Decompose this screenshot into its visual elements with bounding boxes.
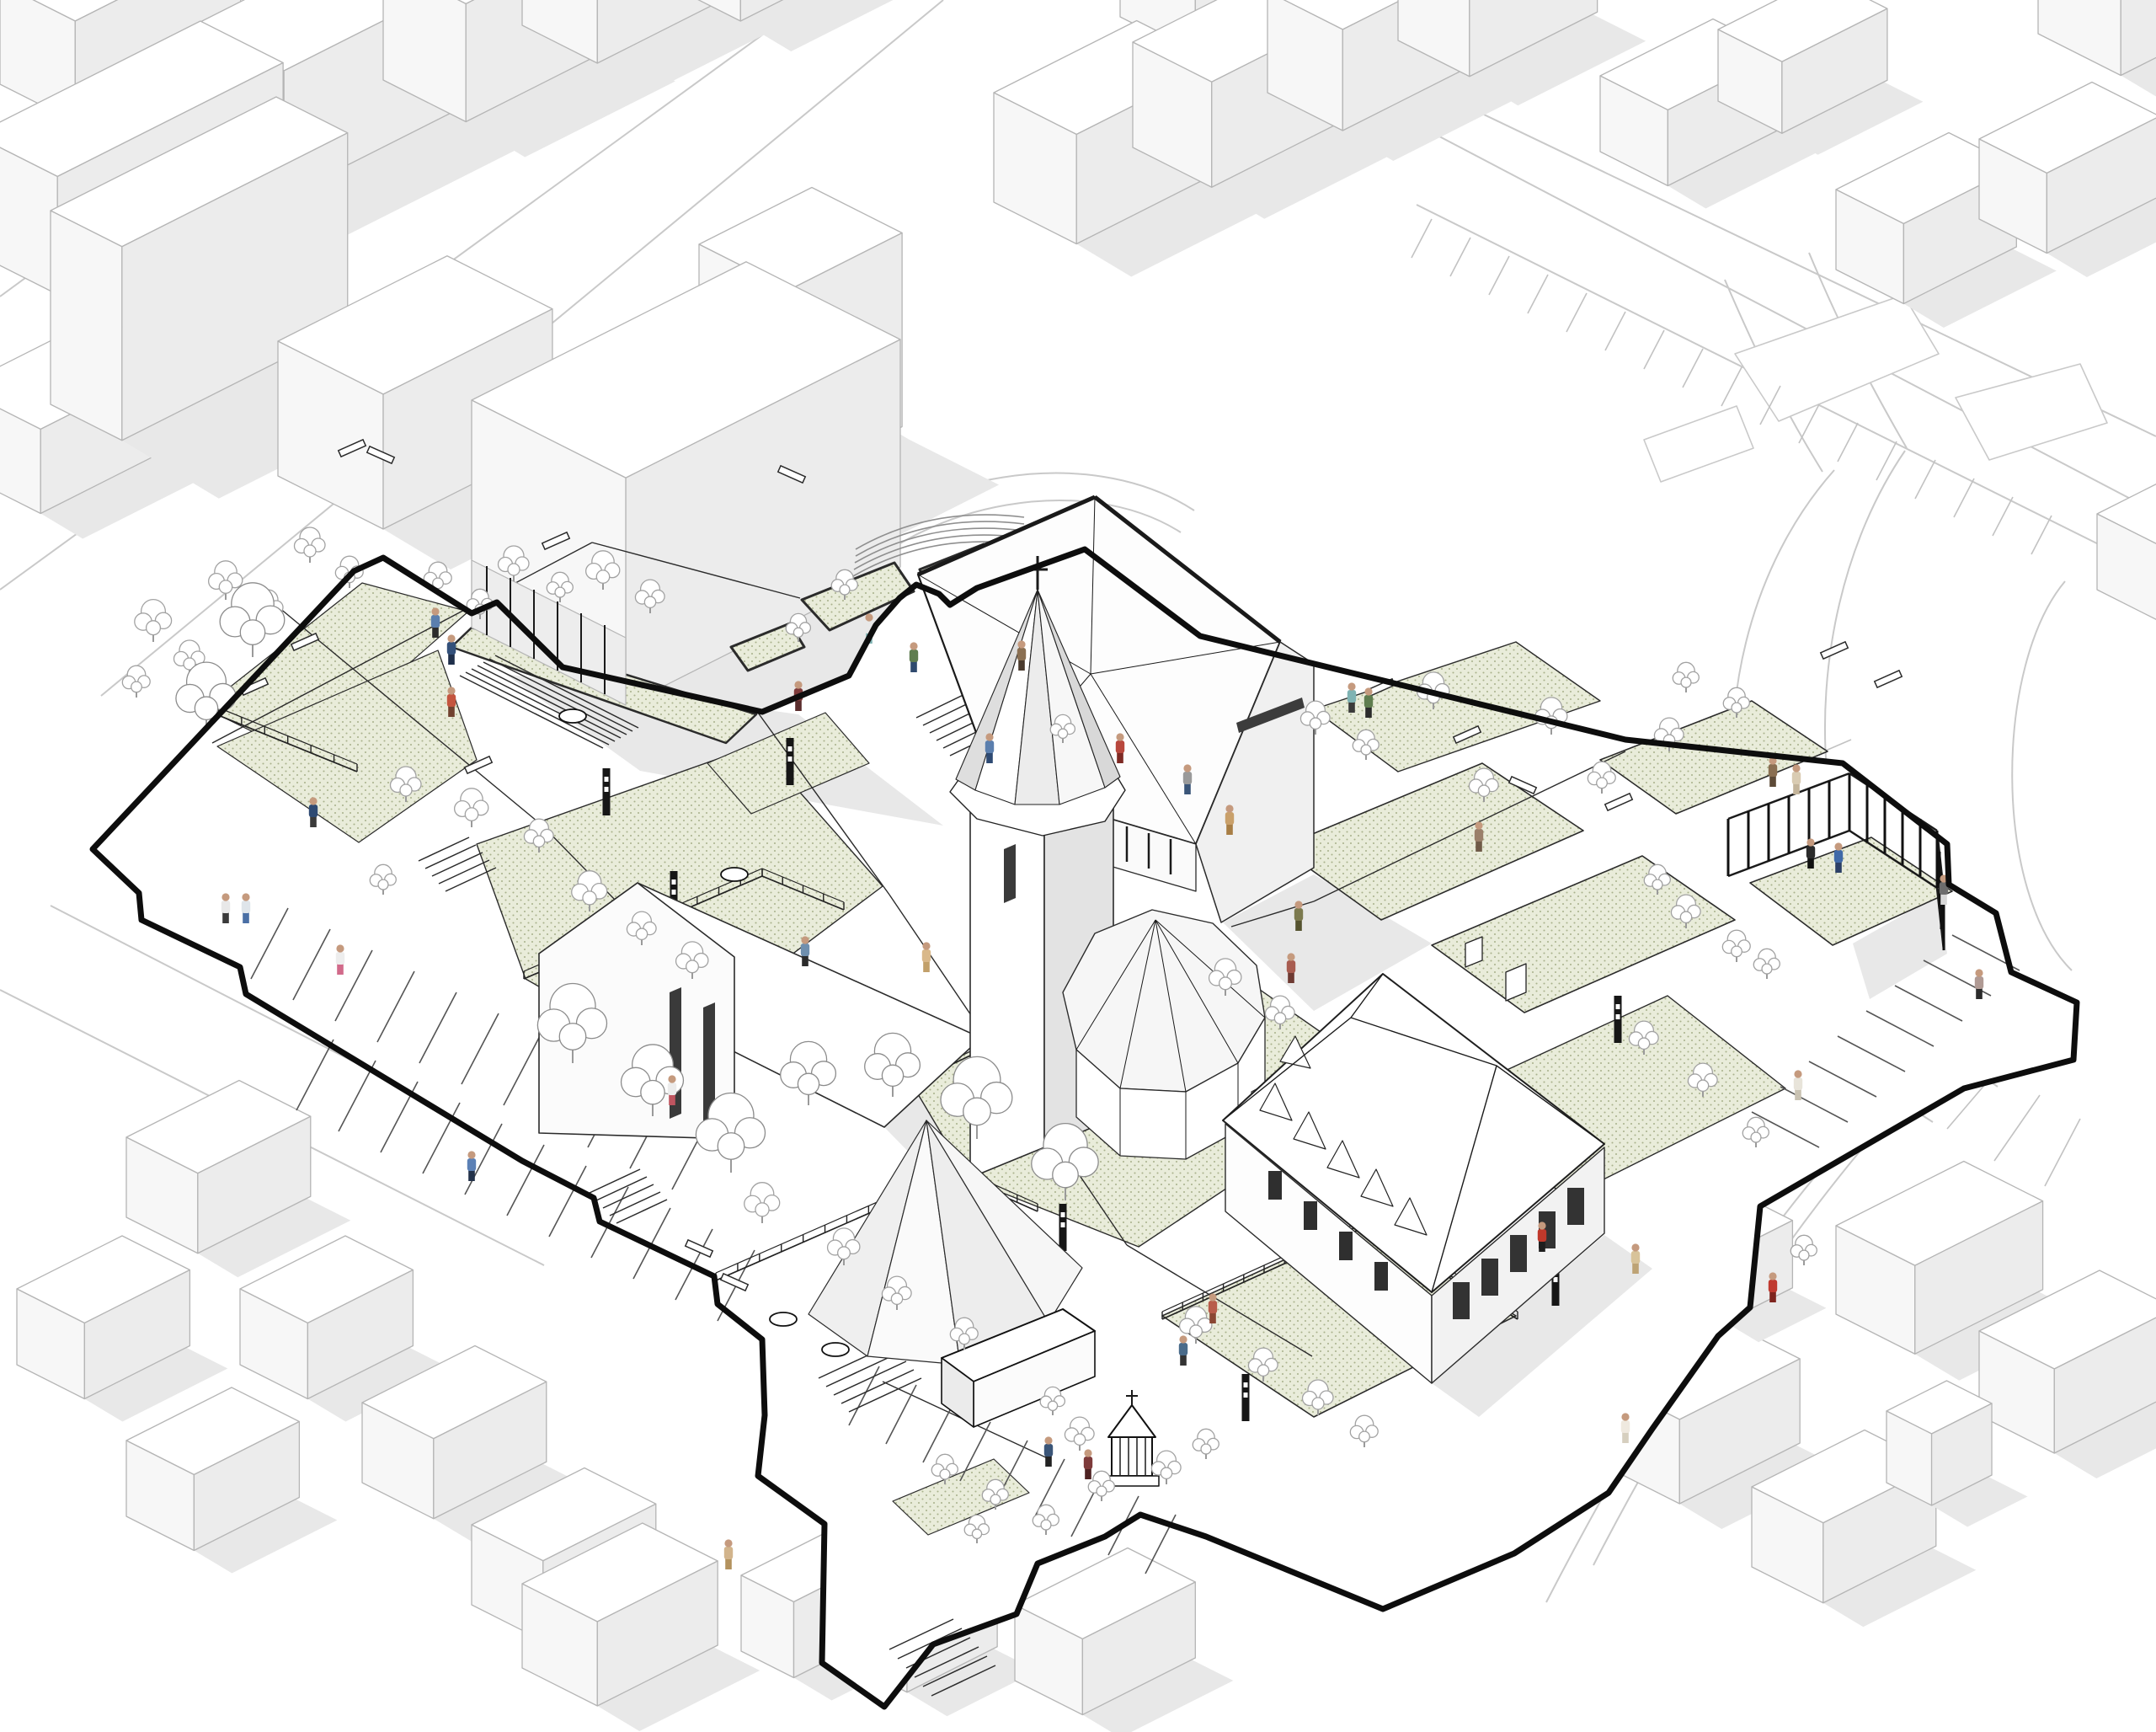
person-figure [1209, 1293, 1217, 1323]
tree-canopy [1361, 745, 1371, 755]
person-torso [1475, 829, 1483, 842]
g-manor-part [1374, 1262, 1388, 1291]
tree-canopy [1732, 946, 1742, 957]
person-head [1183, 764, 1191, 772]
tree-canopy [641, 1080, 664, 1104]
person-head [309, 797, 317, 805]
parking-bay-line [1644, 330, 1664, 369]
person-legs [222, 912, 229, 923]
person-head [865, 613, 873, 621]
tree-canopy [636, 928, 647, 939]
tree-canopy [963, 1098, 991, 1125]
person-legs [243, 912, 249, 923]
bench-seat [1821, 642, 1848, 659]
parking-bay-line [1993, 497, 2013, 536]
person-torso [1225, 812, 1234, 825]
g-manor-part [1304, 1201, 1317, 1230]
person-torso [1364, 695, 1373, 708]
tree-canopy [583, 891, 596, 905]
person-head [1179, 1335, 1187, 1343]
person-torso [1975, 976, 1983, 989]
person-legs [1795, 1089, 1801, 1100]
person-head [1116, 733, 1123, 740]
person-figure [1631, 1243, 1640, 1274]
parking-bay-line [1838, 423, 1858, 462]
person-torso [724, 1547, 733, 1559]
person-head [668, 1075, 675, 1082]
traffic-island [1644, 406, 1753, 482]
roundabout-tick [2045, 1119, 2080, 1186]
lamp-glass [788, 756, 792, 762]
tree-canopy [465, 808, 478, 821]
person-head [1475, 821, 1482, 829]
person-figure [910, 642, 918, 672]
road-line [2012, 581, 2072, 970]
g-gazebo-part [1112, 1437, 1152, 1476]
tree-canopy [686, 960, 699, 973]
person-head [1294, 901, 1302, 908]
person-torso [447, 642, 456, 655]
person-head [431, 607, 439, 615]
tree-canopy [147, 621, 161, 635]
person-torso [910, 649, 918, 662]
person-figure [922, 942, 931, 972]
person-legs [448, 706, 455, 717]
roundabout-tick [1994, 1095, 2040, 1161]
person-legs [1622, 1432, 1629, 1443]
parking-bay-line [296, 1040, 334, 1110]
parking-bay-line [1412, 219, 1432, 258]
lamp-glass [1616, 1004, 1620, 1009]
person-figure [242, 893, 250, 923]
tree-canopy [1058, 729, 1067, 738]
tree-canopy [1310, 718, 1321, 729]
person-figure [724, 1539, 733, 1569]
tree-canopy [882, 1065, 903, 1086]
bench-seat [1875, 671, 1902, 687]
person-torso [1084, 1457, 1092, 1469]
tree-canopy [1219, 977, 1232, 990]
tree-ring [770, 1312, 797, 1326]
person-head [447, 687, 455, 694]
lamp-glass [1061, 1222, 1065, 1227]
person-torso [242, 901, 250, 913]
tree-canopy [838, 1247, 851, 1259]
person-legs [725, 1558, 732, 1569]
person-head [336, 944, 344, 952]
person-torso [1631, 1251, 1640, 1264]
g-manor-part [1481, 1259, 1498, 1296]
person-head [1364, 687, 1372, 695]
g-manor-part [1339, 1232, 1353, 1260]
parking-bay-line [1721, 367, 1742, 406]
person-torso [467, 1158, 476, 1171]
person-head [447, 634, 455, 642]
person-head [1621, 1413, 1629, 1420]
person-head [1631, 1243, 1639, 1251]
tree-canopy [798, 1073, 819, 1094]
person-torso [336, 952, 344, 965]
person-legs [910, 661, 917, 672]
tree-canopy [596, 570, 609, 583]
person-torso [1179, 1343, 1187, 1355]
lamp-glass [1061, 1212, 1065, 1217]
tree-canopy [1190, 1325, 1203, 1338]
tree-canopy [131, 682, 142, 692]
person-torso [447, 694, 456, 707]
tree-canopy [304, 545, 316, 557]
tree-canopy [990, 1494, 1001, 1505]
lamp-glass [788, 746, 792, 751]
person-figure [447, 687, 456, 717]
person-legs [1085, 1468, 1091, 1479]
person-torso [1287, 960, 1295, 973]
tree-ring [559, 709, 586, 723]
person-figure [1806, 838, 1815, 869]
tree-canopy [1201, 1444, 1211, 1454]
person-torso [1017, 648, 1026, 660]
tree-canopy [644, 596, 655, 607]
person-legs [1793, 783, 1800, 794]
person-legs [1117, 752, 1123, 763]
person-head [221, 893, 229, 901]
tree-canopy [1762, 964, 1772, 974]
person-figure [1179, 1335, 1187, 1366]
person-legs [1976, 988, 1983, 999]
tree-canopy [1799, 1250, 1809, 1260]
person-torso [1769, 1280, 1777, 1292]
tree-canopy [959, 1334, 970, 1344]
tree-canopy [533, 836, 544, 847]
tree-canopy [1257, 1365, 1268, 1376]
person-torso [922, 949, 931, 962]
person-legs [1180, 1355, 1187, 1366]
person-figure [1287, 953, 1295, 983]
person-legs [1835, 862, 1842, 873]
person-legs [1045, 1456, 1052, 1467]
lamp-glass [605, 777, 609, 782]
person-torso [1794, 1077, 1802, 1090]
person-figure [1475, 821, 1483, 852]
context-building-wall [2038, 0, 2121, 76]
person-head [1084, 1449, 1091, 1457]
lamp-glass [672, 879, 676, 885]
person-head [1225, 805, 1233, 812]
lamp-glass [1244, 1393, 1248, 1398]
person-figure [1794, 1070, 1802, 1100]
person-figure [1294, 901, 1303, 931]
person-head [910, 642, 917, 649]
tree-canopy [1048, 1401, 1057, 1410]
g-manor-part [1510, 1235, 1527, 1272]
person-legs [986, 752, 993, 763]
parking-bay-line [1566, 293, 1587, 332]
person-legs [310, 816, 317, 827]
person-figure [467, 1151, 476, 1181]
person-figure [1834, 842, 1843, 873]
tree-canopy [508, 564, 520, 575]
person-figure [1225, 805, 1234, 835]
parking-bay-line [1450, 238, 1470, 276]
person-figure [1538, 1221, 1546, 1252]
parking-bay-line [1489, 256, 1509, 295]
person-legs [1807, 858, 1814, 869]
person-torso [1538, 1229, 1546, 1242]
person-figure [1975, 969, 1983, 999]
tree-canopy [1751, 1132, 1761, 1142]
person-torso [1806, 846, 1815, 858]
person-torso [1183, 772, 1192, 784]
person-legs [795, 700, 802, 711]
axonometric-site-plan [0, 0, 2156, 1732]
tree-canopy [755, 1203, 769, 1216]
person-figure [1347, 682, 1356, 713]
tree-canopy [1053, 1162, 1078, 1187]
lamp-glass [605, 787, 609, 792]
person-legs [1539, 1241, 1545, 1252]
person-head [1538, 1221, 1545, 1229]
person-head [1209, 1293, 1216, 1301]
tree-canopy [891, 1293, 902, 1304]
person-torso [1209, 1301, 1217, 1313]
person-head [1975, 969, 1983, 976]
tree-canopy [718, 1133, 744, 1160]
person-head [794, 681, 802, 688]
person-legs [337, 964, 344, 975]
parking-bay-line [1915, 460, 1935, 499]
person-figure [221, 893, 230, 923]
person-figure [801, 936, 809, 966]
tree-ring [721, 868, 748, 881]
person-torso [431, 615, 440, 628]
person-legs [1940, 894, 1947, 905]
person-torso [1621, 1420, 1630, 1433]
person-torso [1769, 764, 1777, 777]
person-figure [336, 944, 344, 975]
tree-canopy [559, 1024, 586, 1050]
person-legs [1365, 707, 1372, 718]
lamp-glass [1554, 1277, 1558, 1282]
person-head [1806, 838, 1814, 846]
person-head [985, 733, 993, 740]
person-figure [1017, 640, 1026, 671]
tree-canopy [940, 1469, 950, 1479]
tree-canopy [1274, 1013, 1285, 1024]
person-head [1347, 682, 1355, 690]
tree-canopy [1041, 1520, 1051, 1530]
person-figure [447, 634, 456, 665]
person-figure [985, 733, 994, 763]
person-torso [985, 740, 994, 753]
tree-canopy [793, 628, 803, 637]
person-head [1044, 1436, 1052, 1444]
person-legs [1476, 841, 1482, 852]
person-figure [1044, 1436, 1053, 1467]
parking-bay-line [1876, 441, 1897, 480]
person-legs [1348, 702, 1355, 713]
person-torso [1294, 908, 1303, 921]
parking-bay-line [1954, 478, 1974, 517]
person-torso [1116, 740, 1124, 753]
person-legs [1018, 660, 1025, 671]
tree-canopy [1638, 1038, 1649, 1049]
person-figure [431, 607, 440, 638]
person-figure [1116, 733, 1124, 763]
person-head [724, 1539, 732, 1547]
tree-canopy [972, 1529, 981, 1538]
person-head [467, 1151, 475, 1158]
person-torso [668, 1082, 676, 1095]
person-figure [1084, 1449, 1092, 1479]
g-manor-part [1567, 1188, 1584, 1225]
person-legs [1295, 920, 1302, 931]
parking-bay-line [1528, 275, 1548, 313]
person-head [1794, 1070, 1801, 1077]
parking-bay-line [1605, 312, 1625, 350]
tree-canopy [1697, 1080, 1708, 1091]
person-figure [309, 797, 318, 827]
person-torso [801, 944, 809, 956]
person-torso [1347, 690, 1356, 703]
tree-canopy [1597, 778, 1608, 788]
context-building-wall [51, 211, 122, 441]
person-head [1792, 764, 1800, 772]
tree-canopy [219, 580, 232, 593]
person-legs [468, 1170, 475, 1181]
tree-canopy [1097, 1486, 1107, 1496]
person-legs [1288, 972, 1294, 983]
person-legs [1209, 1312, 1216, 1323]
bench [1821, 642, 1848, 659]
parking-bay-line [2031, 516, 2052, 554]
person-figure [1621, 1413, 1630, 1443]
tree-canopy [240, 620, 264, 644]
person-torso [1834, 850, 1843, 863]
person-legs [1632, 1263, 1639, 1274]
tree-canopy [1359, 1431, 1370, 1442]
person-head [1017, 640, 1025, 648]
person-torso [221, 901, 230, 913]
person-head [1769, 1272, 1776, 1280]
person-torso [1792, 772, 1801, 784]
g-manor-part [1453, 1282, 1470, 1319]
person-torso [1044, 1444, 1053, 1457]
person-legs [802, 955, 808, 966]
bench [1875, 671, 1902, 687]
tree-ring [822, 1343, 849, 1356]
person-legs [1226, 824, 1233, 835]
tree-canopy [1680, 911, 1691, 922]
parking-bay-line [1683, 349, 1703, 388]
lamp-glass [1244, 1382, 1248, 1387]
person-figure [668, 1075, 676, 1105]
tree-canopy [1478, 785, 1489, 796]
person-head [922, 942, 930, 949]
tree-canopy [840, 585, 850, 595]
person-legs [1184, 783, 1191, 794]
person-head [801, 936, 808, 944]
tree-canopy [1681, 677, 1691, 687]
traffic-island [1956, 364, 2107, 460]
person-head [1834, 842, 1842, 850]
person-figure [1769, 756, 1777, 787]
g-manor-part [1268, 1171, 1282, 1200]
person-figure [1364, 687, 1373, 718]
tree-canopy [1074, 1434, 1085, 1445]
person-head [242, 893, 249, 901]
g-church-part [1004, 844, 1016, 903]
person-legs [1769, 776, 1776, 787]
person-figure [1769, 1272, 1777, 1302]
person-legs [1769, 1291, 1776, 1302]
person-legs [432, 627, 439, 638]
drawing-svg [0, 0, 2156, 1732]
tree-canopy [555, 587, 565, 597]
tree-canopy [1732, 703, 1742, 713]
tree-canopy [1312, 1398, 1324, 1409]
lamp-glass [1616, 1014, 1620, 1019]
person-figure [1792, 764, 1801, 794]
tree-canopy [378, 879, 388, 890]
person-head [1287, 953, 1294, 960]
person-legs [448, 654, 455, 665]
tree-canopy [400, 784, 412, 796]
person-legs [923, 961, 930, 972]
person-torso [309, 805, 318, 817]
person-figure [1183, 764, 1192, 794]
person-legs [669, 1094, 675, 1105]
lamp-glass [672, 890, 676, 895]
tree-canopy [1161, 1467, 1171, 1478]
tree-canopy [1652, 879, 1662, 890]
